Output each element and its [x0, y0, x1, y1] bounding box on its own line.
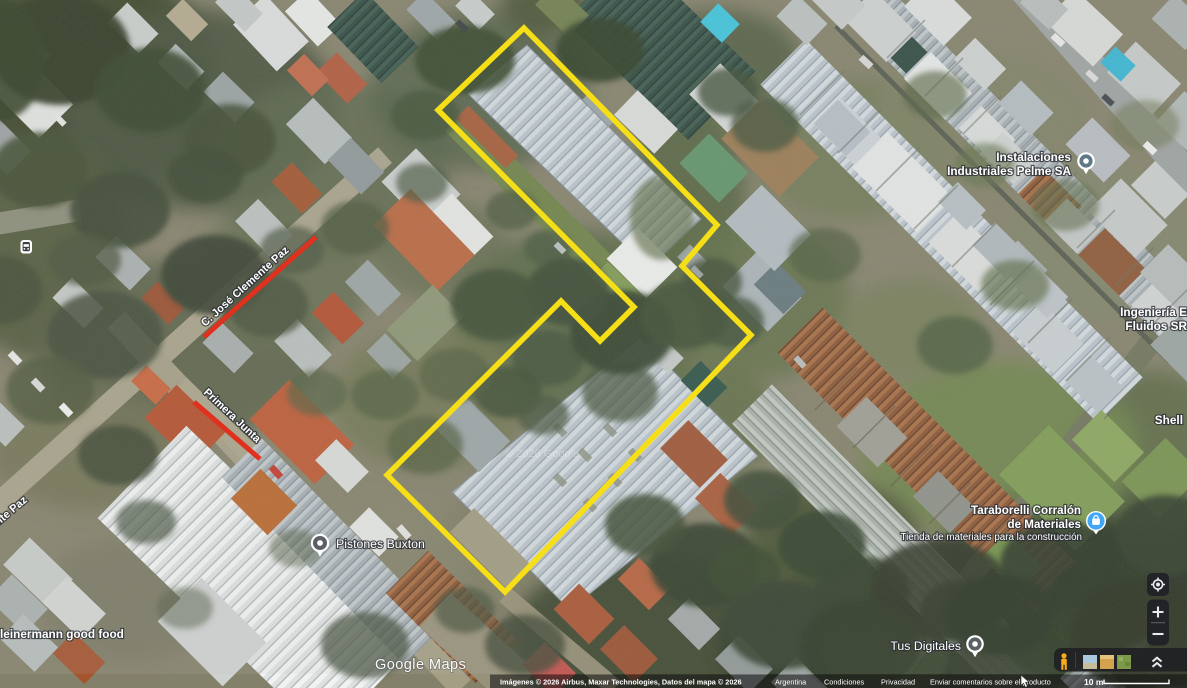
svg-text:Taraborelli Corralón: Taraborelli Corralón — [971, 504, 1081, 517]
svg-text:Imágenes © 2026 Airbus, Maxar: Imágenes © 2026 Airbus, Maxar Technologi… — [500, 678, 742, 687]
svg-text:Tus Digitales: Tus Digitales — [890, 639, 961, 653]
svg-text:10 m: 10 m — [1084, 677, 1104, 687]
svg-text:Industriales Pelme SA: Industriales Pelme SA — [947, 164, 1071, 178]
svg-text:de Materiales: de Materiales — [1008, 518, 1081, 531]
svg-text:Instalaciones: Instalaciones — [996, 150, 1071, 164]
svg-text:© 2026 Google: © 2026 Google — [505, 448, 579, 460]
svg-text:Condiciones: Condiciones — [824, 678, 865, 687]
svg-text:Tienda de materiales para la c: Tienda de materiales para la construcció… — [900, 532, 1082, 543]
svg-text:Enviar comentarios sobre el pr: Enviar comentarios sobre el producto — [930, 678, 1051, 687]
svg-text:Shell: Shell — [1155, 413, 1183, 427]
svg-text:Privacidad: Privacidad — [881, 678, 915, 687]
svg-text:Pistones Buxton: Pistones Buxton — [336, 537, 425, 551]
svg-text:Argentina: Argentina — [775, 678, 807, 687]
svg-text:Fluidos SR: Fluidos SR — [1125, 319, 1187, 333]
svg-text:Ingeniería E: Ingeniería E — [1120, 305, 1187, 319]
svg-text:Google Maps: Google Maps — [375, 657, 466, 673]
svg-text:leinermann good food: leinermann good food — [0, 627, 124, 641]
